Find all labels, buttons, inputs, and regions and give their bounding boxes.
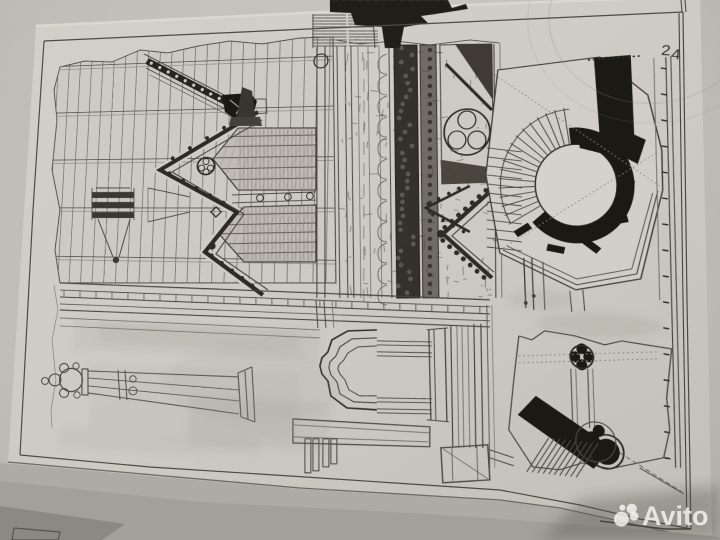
svg-text:Avito: Avito — [642, 501, 709, 531]
